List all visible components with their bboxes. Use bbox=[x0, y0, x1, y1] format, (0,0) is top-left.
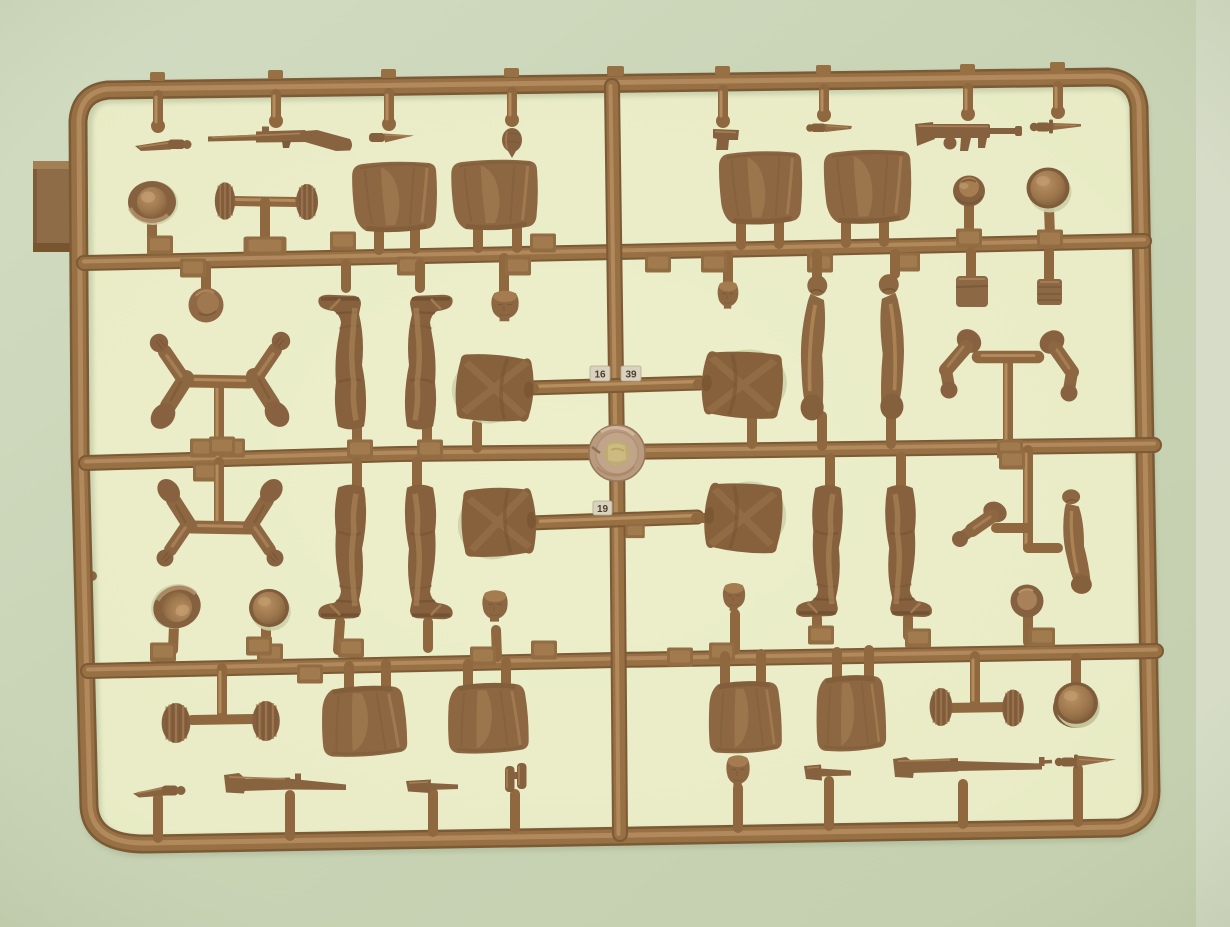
svg-text:39: 39 bbox=[625, 370, 637, 381]
svg-text:16: 16 bbox=[594, 370, 606, 381]
svg-text:19: 19 bbox=[597, 504, 609, 515]
